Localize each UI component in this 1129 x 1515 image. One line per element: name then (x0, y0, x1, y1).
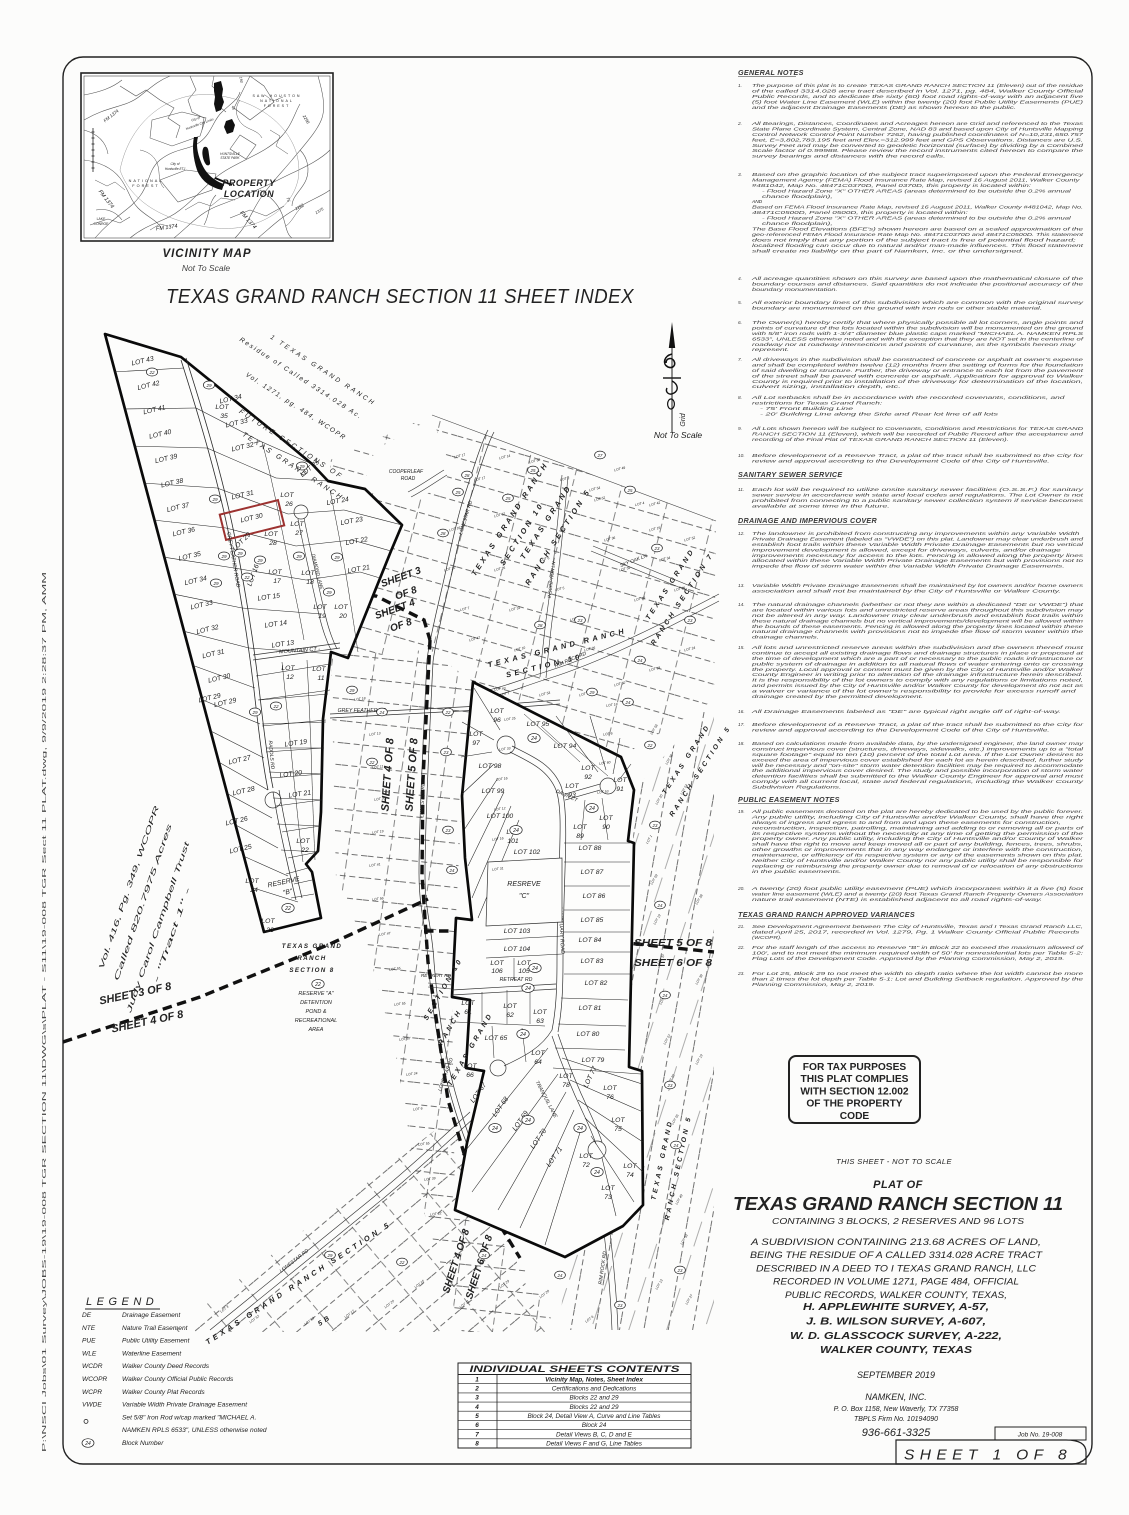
svg-text:29: 29 (349, 688, 355, 693)
svg-text:chance floodplain),: chance floodplain), (762, 221, 833, 227)
svg-text:SEPTEMBER 2019: SEPTEMBER 2019 (857, 1370, 935, 1380)
svg-text:PUBLIC EASEMENT NOTES: PUBLIC EASEMENT NOTES (738, 795, 840, 804)
svg-text:1: 1 (475, 1376, 479, 1383)
svg-text:PUE: PUE (82, 1338, 96, 1345)
svg-text:of the called 3314.028 acre tr: of the called 3314.028 acre tract descri… (752, 89, 1085, 95)
svg-text:LOT: LOT (334, 604, 348, 611)
svg-text:CONROE: CONROE (94, 222, 110, 226)
svg-text:100', and to not meet the mini: 100', and to not meet the minimum requir… (752, 951, 1084, 957)
svg-text:64: 64 (534, 1059, 542, 1066)
svg-text:24: 24 (481, 1253, 487, 1258)
svg-text:boundary are monumented on the: boundary are monumented on the ground wi… (752, 305, 1042, 311)
svg-text:not be altered in any way. Lan: not be altered in any way. Landowner may… (752, 613, 1084, 619)
svg-text:review and approval according: review and approval according to the Dev… (752, 728, 1050, 734)
svg-text:13.: 13. (738, 583, 745, 589)
svg-text:19: 19 (318, 613, 326, 620)
svg-text:4: 4 (474, 1404, 479, 1411)
svg-text:#481042, Map No. 48471C0370D,: #481042, Map No. 48471C0370D, Panel 0370… (752, 183, 1032, 189)
svg-text:allocated within these Variabl: allocated within these Variable Width Pr… (752, 558, 1084, 564)
svg-text:County is required prior to in: County is required prior to installation… (752, 379, 1083, 385)
svg-text:22: 22 (300, 847, 309, 854)
svg-text:J. B. WILSON SURVEY, A-607: J. B. WILSON SURVEY, A-607, (806, 1316, 986, 1327)
svg-text:SAW HOUSTON: SAW HOUSTON (253, 94, 302, 98)
svg-text:association and shall not be m: association and shall not be maintained … (752, 589, 1061, 595)
svg-text:TEXAS GRAND RANCH SECTION: TEXAS GRAND RANCH SECTION 11 SHEET INDEX (166, 285, 635, 308)
svg-text:TEXAS GRAND: TEXAS GRAND (282, 943, 342, 950)
svg-text:WITH SECTION 12.002: WITH SECTION 12.002 (800, 1086, 908, 1097)
svg-text:LOT 65: LOT 65 (485, 1035, 508, 1042)
svg-text:73: 73 (604, 1194, 612, 1201)
svg-text:dated April 25, 2017, recorded: dated April 25, 2017, recorded in Vol. 1… (752, 930, 1080, 936)
svg-text:29: 29 (256, 558, 263, 563)
svg-text:LOT 83: LOT 83 (581, 958, 604, 965)
svg-text:LOT 98: LOT 98 (479, 763, 502, 770)
svg-text:61: 61 (464, 1009, 472, 1016)
svg-text:of said dwelling or structure.: of said dwelling or structure. Further, … (752, 368, 1084, 374)
svg-text:LAKE: LAKE (97, 217, 106, 221)
svg-text:21.: 21. (737, 924, 745, 930)
svg-text:LOT: LOT (573, 824, 587, 831)
svg-text:11: 11 (317, 675, 324, 682)
svg-text:LOT: LOT (533, 1009, 547, 1016)
svg-text:28: 28 (464, 473, 470, 478)
svg-text:29: 29 (205, 383, 212, 388)
svg-text:SECTION 8: SECTION 8 (289, 967, 334, 974)
svg-text:23: 23 (617, 1303, 623, 1308)
svg-text:22: 22 (369, 760, 375, 765)
svg-text:P:\NSCI Jobs\01 Survey\JOBS-19: P:\NSCI Jobs\01 Survey\JOBS-19\19-008 TG… (42, 572, 48, 1452)
svg-text:Not To Scale: Not To Scale (182, 263, 231, 273)
svg-text:shall have the right to move a: shall have the right to move and keep mo… (752, 842, 1083, 848)
svg-text:62: 62 (506, 1012, 514, 1019)
svg-text:LOT 100: LOT 100 (487, 813, 514, 820)
svg-text:Walker County Plat Records: Walker County Plat Records (122, 1389, 205, 1396)
svg-text:23: 23 (652, 823, 658, 828)
svg-text:P. O. Box 1158, New Waver: P. O. Box 1158, New Waverly, TX 77358 (834, 1406, 959, 1413)
svg-text:4.: 4. (738, 276, 742, 282)
svg-text:Detail Views B, C, D and E: Detail Views B, C, D and E (556, 1431, 633, 1438)
svg-text:LOT: LOT (296, 838, 310, 845)
svg-text:LOT: LOT (611, 1117, 625, 1124)
svg-text:comply with all current local,: comply with all current local, state and… (752, 779, 1084, 785)
svg-text:LOT 88: LOT 88 (579, 845, 602, 852)
svg-text:25: 25 (627, 488, 633, 493)
svg-text:12: 12 (286, 674, 294, 681)
svg-text:24: 24 (576, 1126, 583, 1132)
svg-text:and the adjacent Drainage Ease: and the adjacent Drainage Easements (DE)… (752, 105, 1016, 111)
svg-text:review and approval according: review and approval according to the Dev… (752, 458, 1050, 464)
svg-text:92: 92 (584, 774, 592, 781)
svg-text:105: 105 (518, 968, 530, 975)
svg-text:drainage channels.: drainage channels. (752, 635, 819, 641)
svg-text:66: 66 (466, 1072, 474, 1079)
svg-text:construct impervious cover (st: construct impervious cover (structures, … (752, 747, 1085, 753)
svg-text:its respective systems without: its respective systems without the neces… (752, 831, 1084, 837)
svg-text:35: 35 (220, 413, 228, 420)
svg-text:22: 22 (284, 906, 291, 912)
svg-text:It is the responsibility of th: It is the responsibility of the lot owne… (752, 678, 1083, 684)
svg-text:LOT: LOT (215, 404, 229, 411)
svg-text:24: 24 (491, 1126, 498, 1132)
svg-text:The Base Flood Elevations (BFE: The Base Flood Elevations (BFE's) shown … (752, 227, 1084, 233)
svg-text:936-661-3325: 936-661-3325 (862, 1427, 931, 1439)
svg-text:24: 24 (593, 1170, 600, 1176)
svg-text:LOT 103: LOT 103 (504, 928, 531, 935)
svg-text:23: 23 (445, 828, 451, 833)
svg-text:LOT 80: LOT 80 (577, 1031, 600, 1038)
svg-text:will be necessary and "on-site: will be necessary and "on-site" storm wa… (752, 763, 1084, 769)
svg-text:localized flooding can occur d: localized flooding can occur due to natu… (752, 243, 1084, 249)
svg-text:the property. Local approval o: the property. Local approval or consent … (752, 667, 1084, 673)
svg-text:Survey Feet and may be convert: Survey Feet and may be converted to geod… (752, 143, 1084, 149)
svg-text:chance floodplain),: chance floodplain), (762, 194, 833, 200)
svg-text:17: 17 (273, 578, 281, 585)
svg-text:Drainage Easement: Drainage Easement (122, 1312, 181, 1319)
svg-text:29: 29 (325, 590, 332, 595)
svg-text:Management Agency (FEMA) Flood: Management Agency (FEMA) Flood Insurance… (752, 177, 1080, 183)
svg-text:survey bearings and distances: survey bearings and distances with the r… (752, 154, 945, 160)
svg-text:TEXAS GRAND RANCH SECTION: TEXAS GRAND RANCH SECTION 11 (733, 1193, 1063, 1214)
svg-text:FOREST: FOREST (264, 104, 291, 108)
svg-text:LOT 79: LOT 79 (582, 1057, 605, 1064)
svg-text:AREA: AREA (308, 1027, 324, 1033)
svg-text:Public Records, and to dedicat: Public Records, and to dedicate the sixt… (752, 94, 1084, 100)
svg-text:reconstruction, inspection, pa: reconstruction, inspection, patrolling, … (752, 825, 1084, 831)
svg-text:THIS SHEET - NOT TO SCALE: THIS SHEET - NOT TO SCALE (836, 1157, 952, 1166)
svg-text:Blocks 22 and 29: Blocks 22 and 29 (569, 1395, 618, 1402)
svg-text:A SUBDIVISION CONTAINING 21: A SUBDIVISION CONTAINING 213.68 ACRES OF… (750, 1237, 1041, 1247)
svg-text:24: 24 (531, 966, 538, 972)
svg-text:RETREAT RD: RETREAT RD (421, 973, 452, 979)
svg-text:LOT 87: LOT 87 (581, 869, 604, 876)
svg-text:and permits issued by the City: and permits issued by the City of Huntsv… (752, 683, 1084, 689)
svg-text:- 20' Building Line along the: - 20' Building Line along the Side and R… (760, 411, 999, 417)
svg-text:22: 22 (148, 370, 155, 375)
svg-text:- Flood Hazard Zone "X" OTHER: - Flood Hazard Zone "X" OTHER AREAS (are… (762, 216, 1072, 222)
svg-text:24: 24 (519, 1032, 526, 1038)
svg-text:24: 24 (379, 710, 385, 715)
svg-text:CONTAINING 3 BLOCKS, 2 RES: CONTAINING 3 BLOCKS, 2 RESERVES AND 96 L… (772, 1217, 1025, 1226)
svg-text:23: 23 (654, 546, 660, 551)
svg-text:in the public easements.: in the public easements. (752, 869, 841, 875)
svg-text:8.: 8. (738, 395, 742, 401)
svg-text:6533", UNLESS otherwise noted: 6533", UNLESS otherwise noted and with t… (752, 336, 1084, 342)
svg-text:RETREAT RD: RETREAT RD (500, 977, 533, 983)
svg-text:GENERAL NOTES: GENERAL NOTES (738, 68, 804, 77)
svg-text:LOT 82: LOT 82 (585, 980, 608, 987)
svg-text:91: 91 (616, 786, 624, 793)
svg-text:23: 23 (577, 618, 583, 623)
svg-text:LOT: LOT (461, 1000, 475, 1007)
svg-text:16.: 16. (738, 709, 745, 715)
svg-text:culvert sizing, installation d: culvert sizing, installation depth, etc. (752, 384, 901, 390)
svg-text:are located within various lot: are located within various lots and unre… (752, 608, 1084, 614)
svg-text:93: 93 (568, 792, 576, 799)
svg-text:25: 25 (455, 490, 461, 495)
svg-text:22: 22 (399, 1260, 405, 1265)
svg-text:24: 24 (657, 903, 663, 908)
svg-text:Any public utility, including: Any public utility, including City of Hu… (750, 815, 1084, 821)
svg-text:W. D. GLASSCOCK SURVEY, A-: W. D. GLASSCOCK SURVEY, A-222, (790, 1331, 1002, 1342)
svg-text:LOCATION: LOCATION (224, 189, 274, 199)
svg-text:24: 24 (84, 1441, 91, 1447)
svg-text:74: 74 (626, 1172, 634, 1179)
svg-text:24: 24 (662, 993, 668, 998)
svg-text:28: 28 (440, 531, 446, 536)
svg-text:roadway nor at roadway interse: roadway nor at roadway intersections and… (752, 342, 1077, 348)
svg-text:17.: 17. (738, 722, 745, 728)
svg-text:6: 6 (475, 1422, 479, 1429)
svg-text:LOT: LOT (313, 604, 327, 611)
svg-text:NTE: NTE (82, 1325, 96, 1332)
svg-text:LOT 81: LOT 81 (579, 1005, 602, 1012)
svg-text:12.: 12. (738, 531, 745, 537)
svg-text:Nature Trail Easement: Nature Trail Easement (122, 1325, 189, 1332)
svg-text:boundary courses and distances: boundary courses and distances. Said qua… (752, 281, 1084, 287)
svg-text:square footage" equal to ten (: square footage" equal to ten (10) percen… (752, 752, 1084, 758)
svg-text:29: 29 (295, 554, 302, 559)
svg-text:45: 45 (231, 106, 236, 111)
svg-text:19.: 19. (738, 809, 745, 815)
svg-text:public system of drainage in a: public system of drainage in addition to… (750, 661, 1083, 667)
svg-text:LOT 85: LOT 85 (581, 917, 604, 924)
svg-text:geo-referenced FEMA Flood Insu: geo-referenced FEMA Flood Insurance Rate… (752, 232, 1084, 238)
svg-text:LOT: LOT (603, 1085, 617, 1092)
svg-text:property owner. Any public uti: property owner. Any public utility, incl… (750, 836, 1083, 842)
svg-text:23.: 23. (737, 971, 745, 977)
svg-text:LOT: LOT (503, 1003, 517, 1010)
svg-text:22: 22 (445, 710, 451, 715)
svg-text:PLAT OF: PLAT OF (873, 1179, 923, 1191)
svg-text:PROPERTY: PROPERTY (222, 178, 276, 188)
svg-text:LOT: LOT (531, 1050, 545, 1057)
svg-text:- 75' Front Building Line: - 75' Front Building Line (760, 406, 854, 412)
svg-text:23: 23 (677, 1268, 683, 1273)
svg-text:Planning Commission, May 2, 20: Planning Commission, May 2, 2019. (752, 982, 875, 988)
svg-text:WCDR: WCDR (82, 1363, 103, 1370)
svg-text:14.: 14. (738, 602, 745, 608)
svg-text:Based on the graphic location: Based on the graphic location of the sub… (752, 172, 1084, 178)
svg-text:24: 24 (449, 868, 455, 873)
svg-text:RANCH: RANCH (297, 955, 326, 962)
svg-text:7: 7 (475, 1431, 479, 1438)
svg-text:SHEET 6 OF 8: SHEET 6 OF 8 (634, 958, 713, 969)
svg-text:BEING THE RESIDUE OF A CA: BEING THE RESIDUE OF A CALLED 3314.028 A… (750, 1250, 1043, 1260)
svg-text:LOT: LOT (290, 521, 304, 528)
svg-text:RESERVE "A": RESERVE "A" (298, 991, 334, 997)
svg-text:LOT: LOT (490, 960, 504, 967)
svg-text:Block Number: Block Number (122, 1440, 164, 1447)
svg-text:a waiver or variance of the lo: a waiver or variance of the lot owner's … (752, 689, 1076, 695)
svg-text:LOT 99: LOT 99 (482, 788, 505, 795)
svg-text:24: 24 (557, 1273, 563, 1278)
svg-text:90: 90 (602, 824, 610, 831)
svg-text:24: 24 (637, 658, 643, 663)
svg-text:24: 24 (512, 828, 519, 834)
svg-text:LOT 86: LOT 86 (583, 893, 606, 900)
svg-text:8: 8 (475, 1441, 479, 1448)
svg-text:County Engineer in writing pri: County Engineer in writing prior to alte… (752, 672, 1083, 678)
svg-text:DETENTION: DETENTION (300, 1000, 332, 1006)
svg-text:VWDE: VWDE (82, 1402, 102, 1409)
svg-text:SHEET 5 OF 8: SHEET 5 OF 8 (634, 938, 713, 949)
svg-text:FOREST: FOREST (132, 184, 159, 188)
svg-text:LEGEND: LEGEND (86, 1296, 158, 1308)
svg-text:these natural drainage channel: these natural drainage channels but no v… (752, 618, 1084, 624)
svg-text:23: 23 (687, 618, 693, 623)
svg-text:Walker County Deed Records: Walker County Deed Records (122, 1363, 210, 1370)
svg-text:29: 29 (236, 551, 243, 556)
svg-text:29: 29 (220, 554, 227, 559)
svg-text:does not imply that any portio: does not imply that any portion of the s… (752, 237, 1077, 243)
svg-text:See Development Agreement betw: See Development Agreement between The Ci… (752, 924, 1083, 930)
svg-text:9.: 9. (738, 426, 742, 432)
svg-text:LOT: LOT (581, 765, 595, 772)
svg-text:24: 24 (530, 736, 537, 742)
svg-text:DESCRIBED IN A DEED TO I: DESCRIBED IN A DEED TO I TEXAS GRAND RAN… (756, 1263, 1037, 1273)
svg-text:points of curvature of the lot: points of curvature of the lots located … (750, 325, 1083, 331)
svg-text:continue to accept all existin: continue to accept all existing drainage… (752, 651, 1084, 657)
svg-text:18: 18 (306, 579, 314, 586)
svg-text:The natural drainage channels: The natural drainage channels (whether o… (752, 602, 1084, 608)
svg-text:24: 24 (673, 1143, 679, 1148)
svg-text:TEXAS GRAND RANCH APPROVED VAR: TEXAS GRAND RANCH APPROVED VARIANCES (738, 910, 915, 919)
svg-text:97: 97 (472, 740, 480, 747)
svg-text:27: 27 (597, 453, 603, 458)
svg-text:LOT: LOT (613, 777, 627, 784)
svg-text:All Drainage Easements labeled: All Drainage Easements labeled as "DE" a… (750, 709, 1061, 715)
svg-text:feet, E=3,802,783.195 feet and: feet, E=3,802,783.195 feet and Elev.=312… (752, 137, 1083, 143)
svg-text:LOT 84: LOT 84 (579, 937, 602, 944)
svg-text:89: 89 (576, 833, 584, 840)
svg-text:3.: 3. (738, 172, 742, 178)
svg-text:prohibited from connecting to: prohibited from connecting to a public s… (750, 498, 1084, 504)
svg-text:22: 22 (243, 575, 250, 580)
svg-text:Public Utility Easement: Public Utility Easement (122, 1338, 191, 1345)
svg-text:(WCOPR).: (WCOPR). (752, 935, 782, 941)
svg-text:Huntsville ETJ: Huntsville ETJ (165, 167, 186, 171)
svg-text:WCPR: WCPR (82, 1389, 102, 1396)
svg-text:H. APPLEWHITE SURVEY, A-57,: H. APPLEWHITE SURVEY, A-57, (803, 1302, 989, 1313)
svg-text:the bounds of these easements.: the bounds of these easements. Fencing i… (752, 624, 1084, 630)
svg-text:DE: DE (82, 1312, 92, 1319)
svg-text:nature trail easement (NTE) is: nature trail easement (NTE) is establish… (752, 897, 1042, 903)
svg-text:"C": "C" (519, 893, 530, 900)
svg-text:Block 24: Block 24 (582, 1422, 607, 1429)
svg-text:Flag Lots of the Development C: Flag Lots of the Development Code. Appro… (752, 956, 1064, 962)
svg-text:Based on FEMA Flood Insurance: Based on FEMA Flood Insurance Rate Map, … (752, 205, 1083, 211)
svg-text:replacing or reimbursing the p: replacing or reimbursing the property ow… (752, 864, 1084, 870)
svg-text:detention facilities shall be: detention facilities shall be submitted … (752, 774, 1084, 780)
svg-text:Walker County Official Public: Walker County Official Public Records (122, 1376, 234, 1383)
svg-text:recording of the Final Plat of: recording of the Final Plat of TEXAS GRA… (752, 437, 1009, 443)
svg-text:sewer service in accordance wi: sewer service in accordance with state a… (752, 492, 1084, 498)
svg-text:Control Network Control Point: Control Network Control Point Number 726… (752, 132, 1084, 138)
svg-text:27: 27 (294, 530, 303, 537)
svg-text:Each lot will be required to u: Each lot will be required to utilize ons… (752, 487, 1084, 493)
svg-text:LOT: LOT (245, 878, 259, 885)
svg-text:10.: 10. (738, 453, 745, 459)
svg-text:improvements necessary for acc: improvements necessary for access to the… (752, 553, 1084, 559)
svg-text:28: 28 (268, 540, 277, 547)
svg-text:impede the flow of storm water: impede the flow of storm water within th… (752, 564, 1064, 570)
svg-text:shall create no liability on t: shall create no liability on the part of… (752, 248, 1024, 254)
svg-text:22: 22 (272, 704, 279, 709)
svg-text:SHEET 4 OF 8: SHEET 4 OF 8 (110, 1008, 185, 1035)
svg-text:PUBLIC RECORDS, WALKER COUN: PUBLIC RECORDS, WALKER COUNTY, TEXAS, (785, 1290, 1007, 1300)
svg-text:All acreage quantities shown o: All acreage quantities shown on this sur… (750, 276, 1083, 282)
svg-text:WLE: WLE (82, 1350, 97, 1357)
svg-text:NATIONAL: NATIONAL (129, 179, 164, 183)
svg-text:LOT: LOT (281, 665, 295, 672)
svg-text:LOT: LOT (301, 570, 315, 577)
svg-text:22: 22 (647, 743, 653, 748)
svg-text:TBPLS Firm No. 10194090: TBPLS Firm No. 10194090 (854, 1416, 938, 1423)
svg-text:48471C0500D, Panel 0500D, this: 48471C0500D, Panel 0500D, this property … (752, 210, 969, 216)
svg-text:Certifications and Dedications: Certifications and Dedications (552, 1386, 637, 1393)
svg-text:101: 101 (507, 838, 519, 845)
svg-text:29: 29 (212, 581, 219, 586)
svg-text:LOT: LOT (601, 1185, 615, 1192)
svg-text:All Bearings, Distances, Coord: All Bearings, Distances, Coordinates and… (750, 121, 1084, 127)
svg-text:WCOPR: WCOPR (82, 1376, 108, 1383)
svg-text:Blocks 22 and 29: Blocks 22 and 29 (569, 1404, 618, 1411)
svg-text:63: 63 (536, 1018, 544, 1025)
svg-text:23: 23 (443, 750, 449, 755)
svg-text:LOT 104: LOT 104 (504, 946, 531, 953)
svg-text:25: 25 (505, 496, 511, 501)
svg-text:State Plane Coordinate System,: State Plane Coordinate System, Central Z… (752, 126, 1084, 132)
svg-text:Block 24, Detail View A, Curve: Block 24, Detail View A, Curve and Line … (528, 1413, 662, 1420)
svg-text:maintenance, or efficiency of: maintenance, or efficiency of its respec… (752, 853, 1083, 859)
svg-text:20.: 20. (737, 886, 745, 892)
svg-text:A twenty (20) foot public util: A twenty (20) foot public utility easeme… (750, 886, 1084, 892)
svg-text:LOT: LOT (312, 666, 326, 673)
svg-text:29: 29 (589, 690, 595, 695)
svg-text:Variable Width Private Drainag: Variable Width Private Drainage Easement (122, 1402, 248, 1409)
svg-text:All public easements denoted o: All public easements denoted on the plat… (750, 809, 1083, 815)
svg-text:6.: 6. (738, 320, 742, 326)
svg-text:represent.: represent. (752, 347, 789, 353)
svg-text:All lots and unrestricted rese: All lots and unrestricted reserve areas … (750, 645, 1084, 651)
svg-text:24: 24 (588, 806, 595, 812)
svg-text:23: 23 (667, 1083, 673, 1088)
svg-text:other growths or improvements: other growths or improvements that in an… (752, 847, 1083, 853)
svg-text:VICINITY MAP: VICINITY MAP (162, 248, 251, 260)
svg-text:29: 29 (211, 497, 218, 502)
svg-text:11.: 11. (738, 487, 744, 493)
svg-text:Neither City of Huntsville and: Neither City of Huntsville and/or Walker… (752, 858, 1084, 864)
svg-text:24: 24 (249, 887, 258, 894)
svg-text:THIS PLAT COMPLIES: THIS PLAT COMPLIES (801, 1074, 909, 1085)
svg-text:24: 24 (524, 1118, 531, 1124)
svg-text:RECORDED IN VOLUME 1271, P: RECORDED IN VOLUME 1271, PAGE 484, OFFIC… (773, 1277, 1019, 1287)
svg-text:water line easement (WLE) and: water line easement (WLE) and a twenty (… (752, 892, 1084, 898)
svg-text:STATE PARK: STATE PARK (220, 156, 240, 160)
svg-text:LOT: LOT (280, 492, 294, 499)
svg-text:of the street shall be paved w: of the street shall be paved with concre… (752, 373, 1084, 379)
svg-text:24: 24 (524, 986, 531, 992)
svg-text:96: 96 (493, 717, 501, 724)
svg-text:- Flood Hazard Zone "X" OTHER: - Flood Hazard Zone "X" OTHER AREAS (are… (762, 188, 1072, 194)
svg-text:24: 24 (625, 700, 631, 705)
svg-text:drainage created by the permit: drainage created by the permitted develo… (752, 694, 923, 700)
svg-text:the time of development which: the time of development which are a part… (752, 656, 1084, 662)
svg-text:5: 5 (475, 1413, 479, 1420)
svg-text:LOT: LOT (490, 708, 504, 715)
svg-text:2.: 2. (737, 121, 742, 127)
svg-text:the additional impervious cove: the additional impervious cover desired.… (752, 768, 1084, 774)
